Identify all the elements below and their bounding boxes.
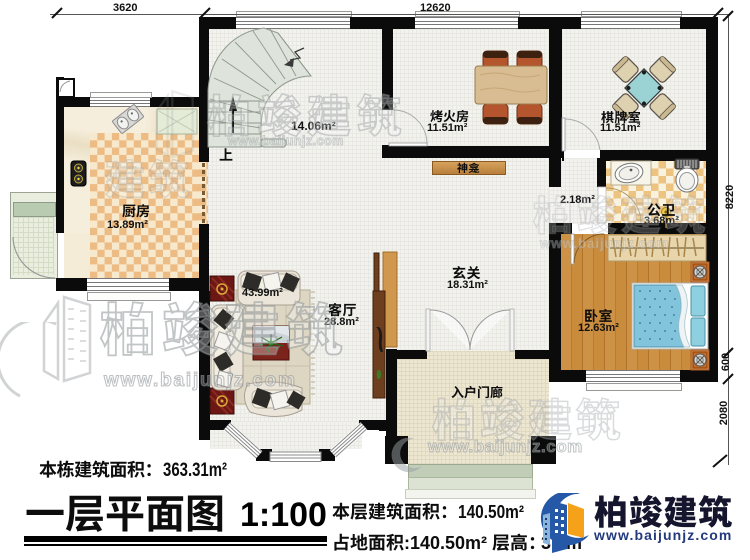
svg-text:363.31m²: 363.31m² — [163, 460, 227, 481]
svg-text::140.50m²: :140.50m² — [404, 533, 487, 553]
svg-text:140.50m²: 140.50m² — [458, 502, 524, 522]
